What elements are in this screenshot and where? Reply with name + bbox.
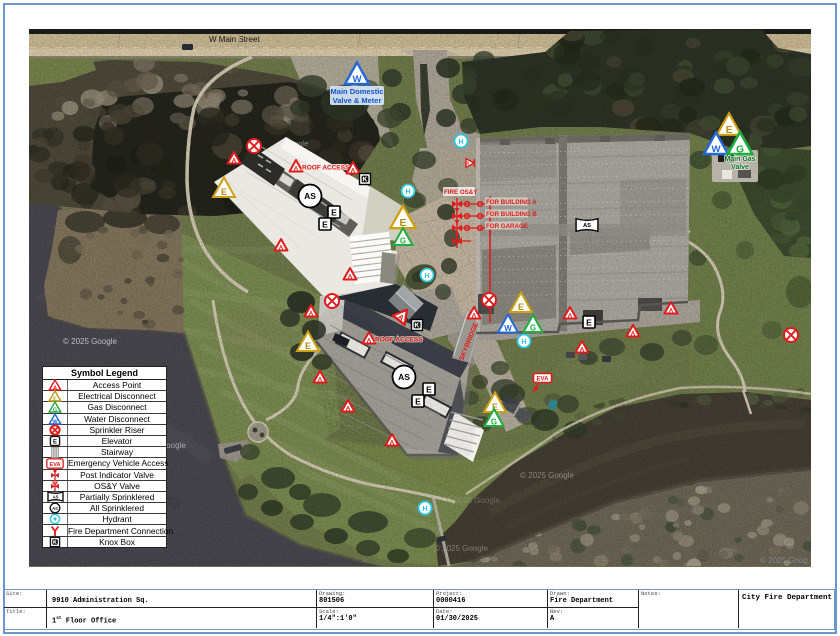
svg-text:Google: Google xyxy=(284,139,308,148)
svg-text:EVA: EVA xyxy=(537,377,550,383)
svg-text:FOR GARAGE: FOR GARAGE xyxy=(486,223,528,230)
svg-text:© 2025 Google: © 2025 Google xyxy=(520,471,574,480)
svg-text:Main Gas: Main Gas xyxy=(724,156,755,163)
svg-text:FIRE OS&Y: FIRE OS&Y xyxy=(444,189,478,196)
svg-text:Valve: Valve xyxy=(731,164,749,171)
svg-text:FOR BUILDING B: FOR BUILDING B xyxy=(486,211,537,218)
svg-text:Main Domestic: Main Domestic xyxy=(331,87,384,96)
svg-text:ROOF ACCESS: ROOF ACCESS xyxy=(375,337,423,344)
svg-text:© 2025 Goog: © 2025 Goog xyxy=(760,556,808,565)
svg-text:© 2025 Google: © 2025 Google xyxy=(446,496,500,505)
svg-text:E: E xyxy=(53,440,57,446)
svg-text:ROOF ACCESS: ROOF ACCESS xyxy=(302,165,350,172)
svg-text:FOR BUILDING A: FOR BUILDING A xyxy=(486,199,537,206)
svg-text:© 2025 Google: © 2025 Google xyxy=(434,544,488,553)
svg-text:© 2025 Google: © 2025 Google xyxy=(63,337,117,346)
svg-text:EVA: EVA xyxy=(50,462,61,468)
svg-text:Valve & Meter: Valve & Meter xyxy=(333,96,382,105)
svg-text:AS: AS xyxy=(52,506,58,511)
svg-text:AS: AS xyxy=(52,495,58,500)
